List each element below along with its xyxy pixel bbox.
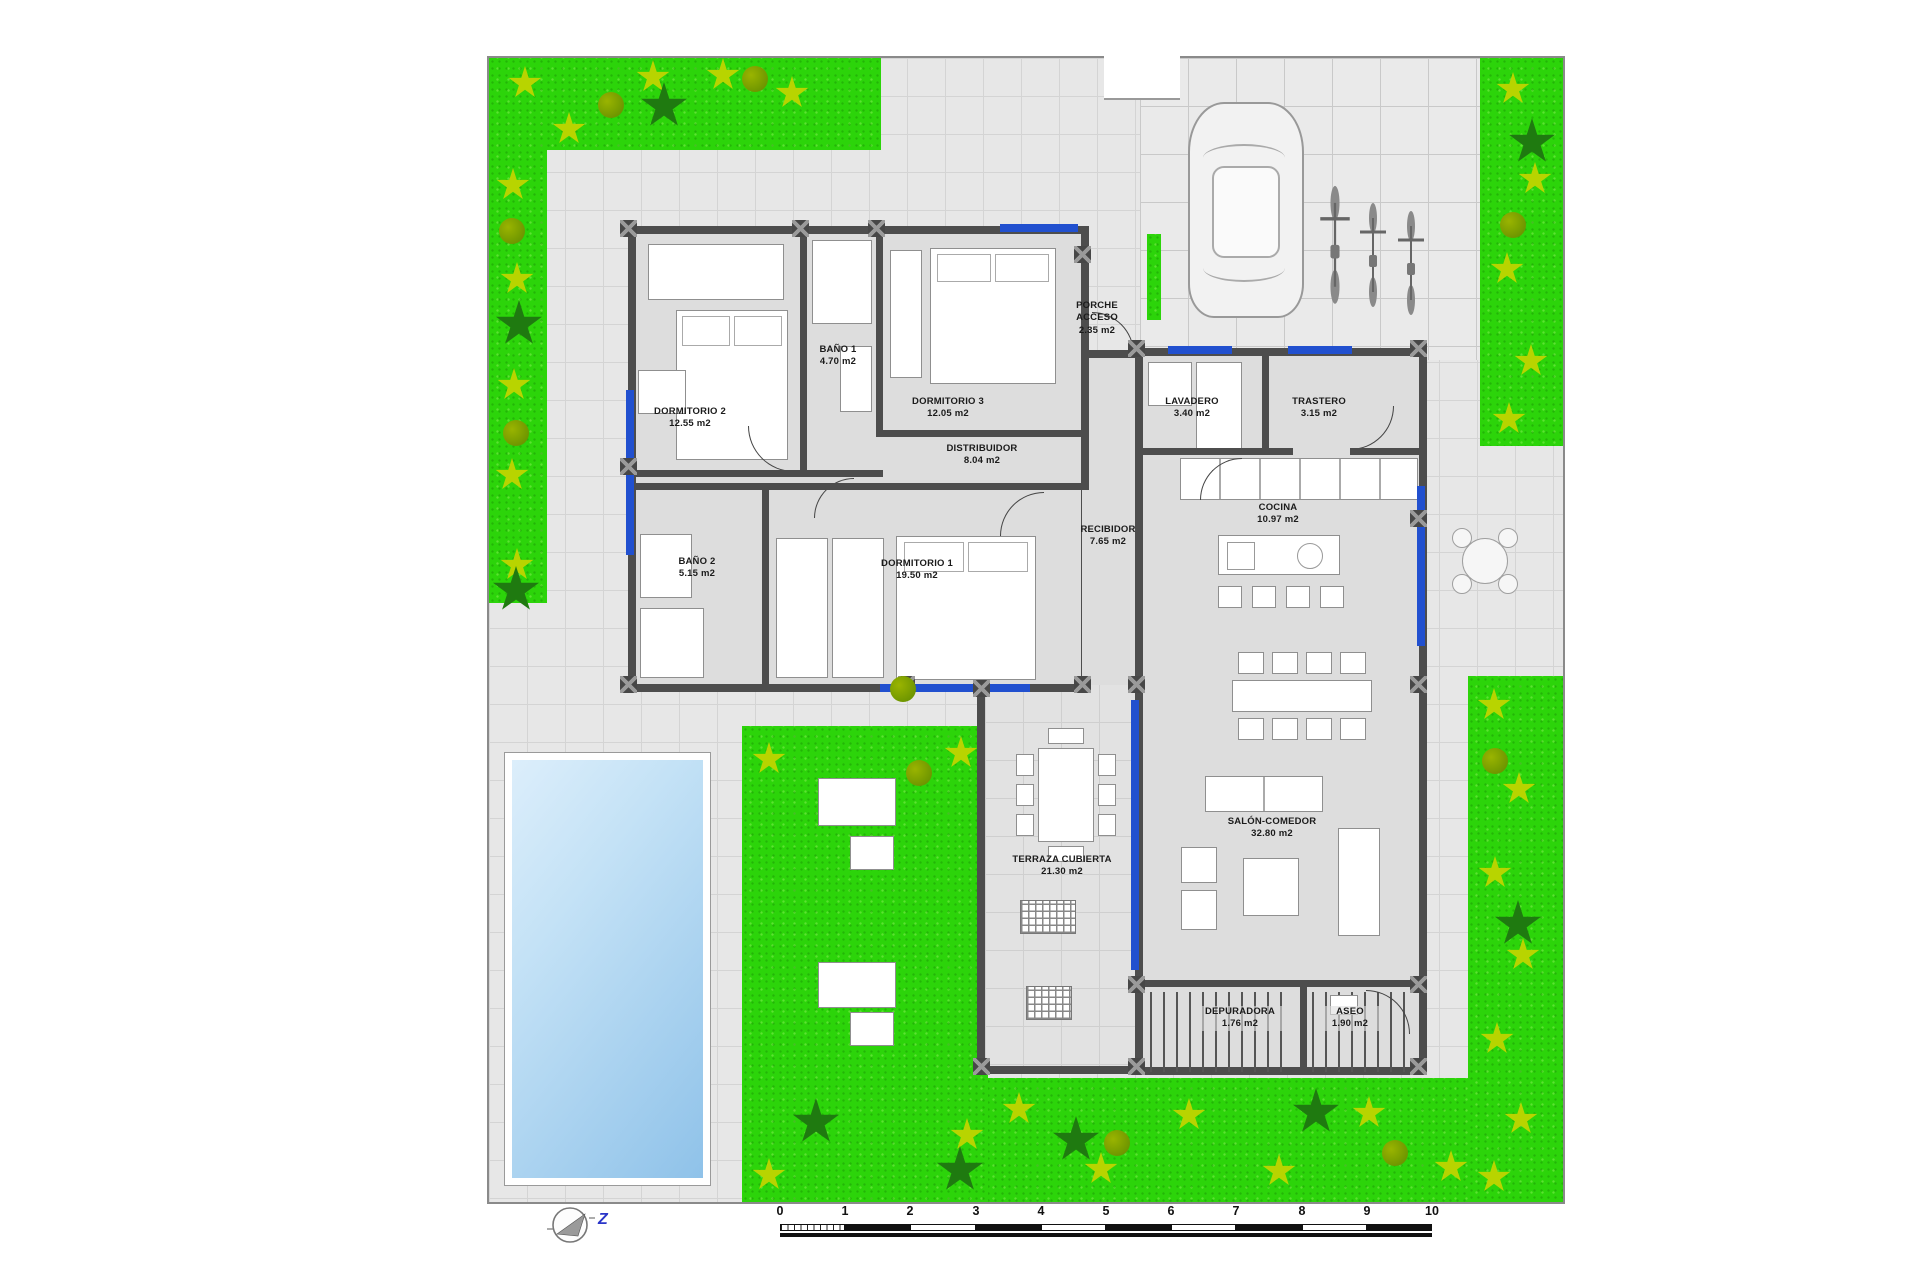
room-area: 19.50 m2: [862, 570, 972, 582]
room-area: 3.40 m2: [1155, 408, 1229, 420]
bicycle-top-view: [1396, 208, 1426, 320]
column: [620, 458, 637, 475]
bicycle-top-view: [1318, 182, 1352, 310]
sliding-glass-door: [1131, 700, 1139, 970]
shrub: [499, 218, 525, 244]
swimming-pool: [505, 753, 710, 1185]
wall: [636, 483, 1082, 490]
dining-chair: [1238, 652, 1264, 674]
shrub: [503, 420, 529, 446]
porch-climbing-plant: [1147, 234, 1161, 320]
column: [1128, 676, 1145, 693]
room-name: DISTRIBUIDOR: [927, 443, 1037, 455]
room-name: TERRAZA CUBIERTA: [1006, 854, 1118, 866]
scale-number: 8: [1299, 1204, 1306, 1218]
entrance-gate-recess: [1104, 56, 1180, 100]
window: [1000, 224, 1078, 232]
wardrobe: [648, 244, 784, 300]
scale-segment: [1302, 1224, 1367, 1231]
kitchen-island: [1218, 535, 1340, 575]
room-label-dormitorio-3: DORMITORIO 3 12.05 m2: [893, 396, 1003, 421]
room-name: SALÓN-COMEDOR: [1224, 816, 1320, 828]
dining-chair: [1306, 652, 1332, 674]
room-name: DORMITORIO 3: [893, 396, 1003, 408]
shrub: [1482, 748, 1508, 774]
wall: [1350, 448, 1419, 455]
room-label-banio-1: BAÑO 1 4.70 m2: [802, 344, 874, 369]
floor-plan-canvas: DORMITORIO 2 12.55 m2 BAÑO 1 4.70 m2 DOR…: [0, 0, 1920, 1280]
terrace-chair: [1016, 754, 1034, 776]
pillow: [734, 316, 782, 346]
hob: [1227, 542, 1255, 570]
sink: [1297, 543, 1323, 569]
dining-chair: [1306, 718, 1332, 740]
room-label-cocina: COCINA 10.97 m2: [1240, 502, 1316, 527]
wardrobe: [890, 250, 922, 378]
column: [620, 676, 637, 693]
room-area: 12.05 m2: [893, 408, 1003, 420]
wall: [807, 470, 883, 477]
scale-number: 2: [907, 1204, 914, 1218]
wall: [1143, 448, 1293, 455]
column: [1074, 246, 1091, 263]
wall: [762, 490, 769, 684]
dining-table: [1232, 680, 1372, 712]
room-name: RECIBIDOR: [1066, 524, 1150, 536]
pillow: [682, 316, 730, 346]
wall: [1300, 987, 1307, 1074]
patio-chair: [1452, 528, 1472, 548]
pillow: [995, 254, 1049, 282]
armchair: [1181, 890, 1217, 930]
room-name: DEPURADORA: [1196, 1006, 1284, 1018]
scale-number: 1: [842, 1204, 849, 1218]
window: [1288, 346, 1352, 354]
column: [1074, 676, 1091, 693]
column: [1410, 510, 1427, 527]
room-label-salon-comedor: SALÓN-COMEDOR 32.80 m2: [1224, 816, 1320, 841]
dining-chair: [1272, 718, 1298, 740]
wall: [1143, 980, 1419, 987]
garden-top: [489, 58, 881, 150]
scale-segment: [976, 1224, 1041, 1231]
shrub: [1382, 1140, 1408, 1166]
sun-lounger: [850, 1012, 894, 1046]
room-area: 2.35 m2: [1068, 325, 1126, 337]
pillow: [968, 542, 1028, 572]
terrace-chair: [1098, 814, 1116, 836]
room-label-aseo: ASEO 1.90 m2: [1320, 1006, 1380, 1031]
wall: [876, 234, 883, 437]
patio-chair: [1498, 574, 1518, 594]
north-compass-icon: Z: [546, 1198, 630, 1252]
shrub: [598, 92, 624, 118]
room-label-dormitorio-2: DORMITORIO 2 12.55 m2: [635, 406, 745, 431]
room-name: BAÑO 1: [802, 344, 874, 356]
room-area: 32.80 m2: [1224, 828, 1320, 840]
column: [1410, 676, 1427, 693]
terrace-chair: [1048, 728, 1084, 744]
scale-number: 4: [1038, 1204, 1045, 1218]
scale-number: 10: [1425, 1204, 1439, 1218]
scale-number: 9: [1364, 1204, 1371, 1218]
shrub: [742, 66, 768, 92]
scale-bar: 0 1 2 3 4 5 6 7 8 9 10: [780, 1204, 1432, 1246]
stairs: [1150, 992, 1292, 1072]
column: [1128, 976, 1145, 993]
terrace-chair: [1098, 754, 1116, 776]
wall: [636, 470, 807, 477]
dining-chair: [1340, 718, 1366, 740]
terrace-grate: [1026, 986, 1072, 1020]
scale-segment: [1236, 1224, 1302, 1231]
car-windshield: [1203, 144, 1285, 172]
shower: [812, 240, 872, 324]
scale-number: 5: [1103, 1204, 1110, 1218]
wall: [876, 430, 1089, 437]
column: [868, 220, 885, 237]
tv-sideboard: [1338, 828, 1380, 936]
column: [620, 220, 637, 237]
wall: [1262, 356, 1269, 455]
column: [973, 1058, 990, 1075]
column: [792, 220, 809, 237]
room-area: 1.76 m2: [1196, 1018, 1284, 1030]
room-name: DORMITORIO 1: [862, 558, 972, 570]
column: [1128, 1058, 1145, 1075]
car-roof: [1212, 166, 1280, 258]
garden-top-right: [1480, 58, 1563, 446]
room-area: 1.90 m2: [1320, 1018, 1380, 1030]
terrace-chair: [1098, 784, 1116, 806]
room-name: ASEO: [1320, 1006, 1380, 1018]
room-name: DORMITORIO 2: [635, 406, 745, 418]
terrace-chair: [1016, 814, 1034, 836]
shrub: [906, 760, 932, 786]
armchair: [1181, 847, 1217, 883]
scale-segment: [910, 1224, 976, 1231]
bicycle-top-view: [1358, 200, 1388, 312]
sun-lounger: [818, 962, 896, 1008]
room-label-terraza-cubierta: TERRAZA CUBIERTA 21.30 m2: [1006, 854, 1118, 879]
stool: [1218, 586, 1242, 608]
dining-chair: [1340, 652, 1366, 674]
room-area: 5.15 m2: [655, 568, 739, 580]
room-name: BAÑO 2: [655, 556, 739, 568]
room-area: 3.15 m2: [1282, 408, 1356, 420]
terrace-wall-left: [977, 684, 985, 1074]
terrace-table: [1038, 748, 1094, 842]
room-label-banio-2: BAÑO 2 5.15 m2: [655, 556, 739, 581]
shrub: [1500, 212, 1526, 238]
wall: [1082, 234, 1089, 490]
terrace-chair: [1016, 784, 1034, 806]
room-area: 4.70 m2: [802, 356, 874, 368]
pillow: [937, 254, 991, 282]
column: [1410, 340, 1427, 357]
dining-chair: [1238, 718, 1264, 740]
scale-base-bar: [780, 1233, 1432, 1237]
shower: [640, 608, 704, 678]
scale-segment: [1106, 1224, 1171, 1231]
sun-lounger: [850, 836, 894, 870]
stool: [1252, 586, 1276, 608]
scale-number: 6: [1168, 1204, 1175, 1218]
scale-segment: [845, 1224, 910, 1231]
terrace-grate: [1020, 900, 1076, 934]
room-label-lavadero: LAVADERO 3.40 m2: [1155, 396, 1229, 421]
room-name: COCINA: [1240, 502, 1316, 514]
scale-segment: [1171, 1224, 1236, 1231]
car-top-view: [1188, 102, 1304, 318]
terrace-wall-bottom: [977, 1066, 1143, 1074]
stool: [1320, 586, 1344, 608]
scale-number: 3: [973, 1204, 980, 1218]
sofa: [1205, 776, 1323, 812]
room-name: TRASTERO: [1282, 396, 1356, 408]
stool: [1286, 586, 1310, 608]
room-name: LAVADERO: [1155, 396, 1229, 408]
room-area: 7.65 m2: [1066, 536, 1150, 548]
shrub: [1104, 1130, 1130, 1156]
compass-north-label: Z: [597, 1211, 609, 1228]
scale-number: 7: [1233, 1204, 1240, 1218]
dining-chair: [1272, 652, 1298, 674]
window: [1168, 346, 1232, 354]
scale-number: 0: [777, 1204, 784, 1218]
column: [1128, 340, 1145, 357]
sun-lounger: [818, 778, 896, 826]
room-area: 10.97 m2: [1240, 514, 1316, 526]
double-bed: [930, 248, 1056, 384]
patio-chair: [1452, 574, 1472, 594]
room-area: 8.04 m2: [927, 455, 1037, 467]
room-label-dormitorio-1: DORMITORIO 1 19.50 m2: [862, 558, 972, 583]
wardrobe: [776, 538, 828, 678]
scale-segment: [780, 1224, 845, 1231]
column: [1410, 1058, 1427, 1075]
room-label-porche-acceso: PORCHE ACCESO 2.35 m2: [1068, 300, 1126, 337]
hall-corridor-floor: [1082, 355, 1142, 685]
room-area: 12.55 m2: [635, 418, 745, 430]
scale-segment: [1041, 1224, 1106, 1231]
scale-segment: [1367, 1224, 1432, 1231]
room-label-trastero: TRASTERO 3.15 m2: [1282, 396, 1356, 421]
shrub: [890, 676, 916, 702]
column: [1410, 976, 1427, 993]
coffee-table: [1243, 858, 1299, 916]
patio-chair: [1498, 528, 1518, 548]
room-label-depuradora: DEPURADORA 1.76 m2: [1196, 1006, 1284, 1031]
column: [973, 680, 990, 697]
room-label-distribuidor: DISTRIBUIDOR 8.04 m2: [927, 443, 1037, 468]
room-label-recibidor: RECIBIDOR 7.65 m2: [1066, 524, 1150, 549]
room-area: 21.30 m2: [1006, 866, 1118, 878]
car-rear-window: [1203, 254, 1285, 282]
room-name: PORCHE ACCESO: [1068, 300, 1126, 325]
